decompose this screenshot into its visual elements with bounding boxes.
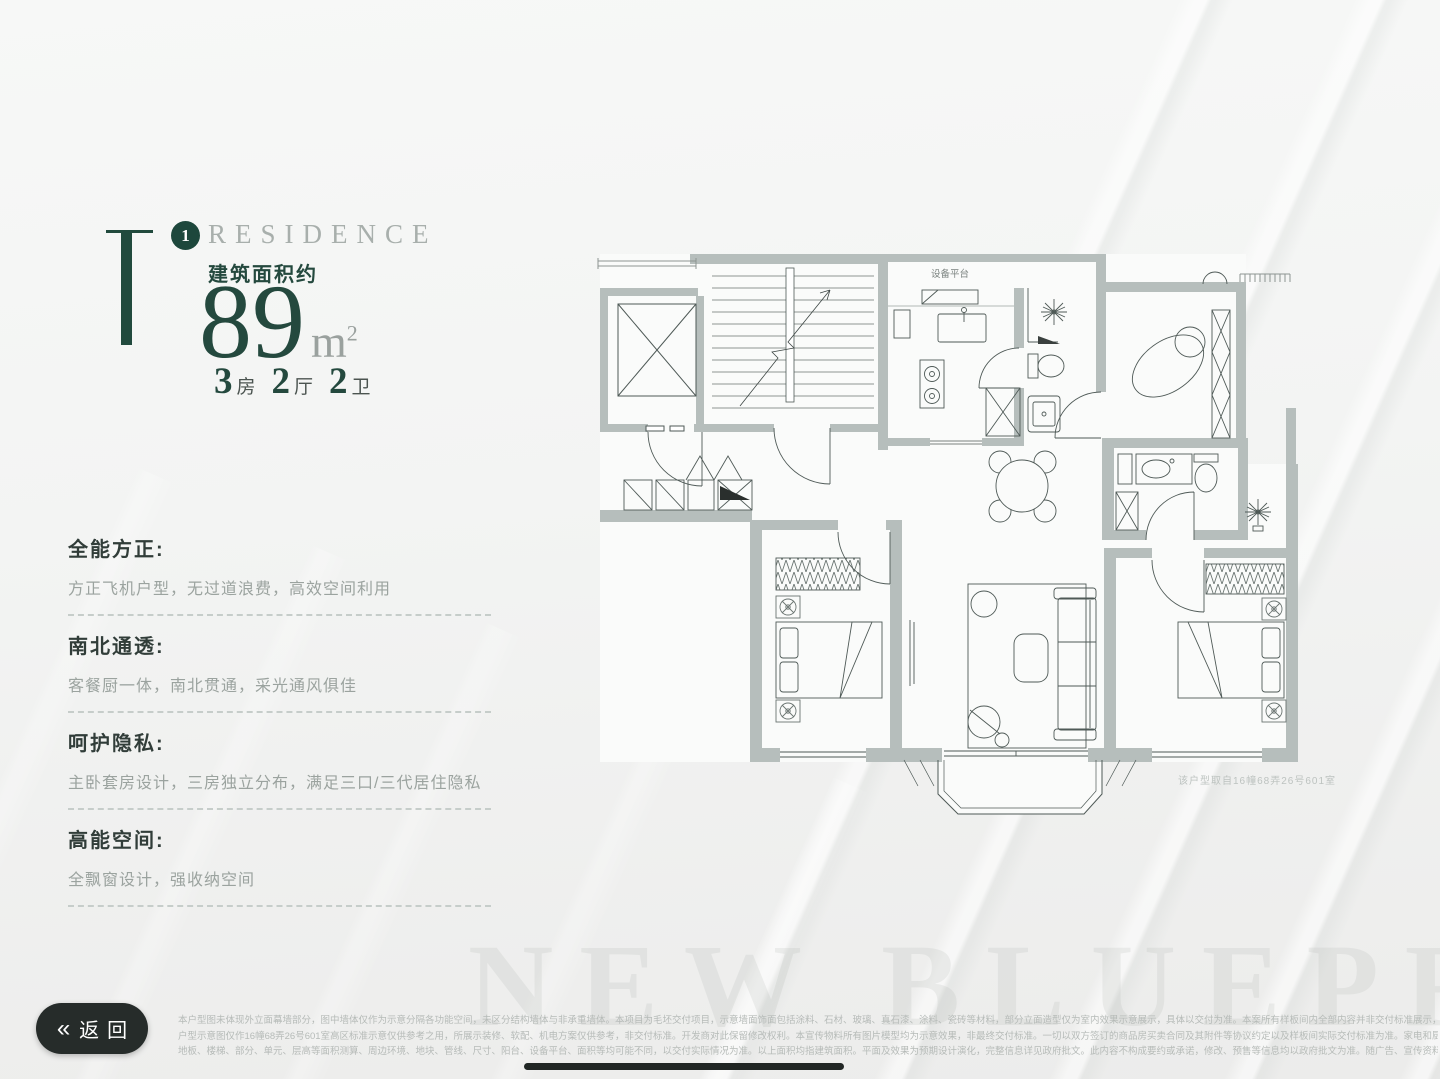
feature-item: 高能空间: 全飘窗设计，强收纳空间	[68, 824, 491, 907]
home-indicator[interactable]	[524, 1063, 844, 1070]
apartment-floor	[600, 254, 1298, 762]
balcony-floor	[938, 762, 1102, 814]
feature-desc: 主卧套房设计，三房独立分布，满足三口/三代居住隐私	[68, 769, 491, 793]
dashed-divider	[68, 905, 491, 907]
page-background: NEW BLUEPRINT 1 RESIDENCE 建筑面积约 89 m2 3 …	[0, 0, 1440, 1079]
chevron-left-icon: «	[57, 1017, 70, 1041]
room-count-living: 2 厅	[272, 360, 314, 403]
feature-list: 全能方正: 方正飞机户型，无过道浪费，高效空间利用 南北通透: 客餐厨一体，南北…	[68, 533, 491, 921]
platform-label: 设备平台	[931, 268, 969, 280]
feature-item: 全能方正: 方正飞机户型，无过道浪费，高效空间利用	[68, 533, 491, 616]
feature-desc: 全飘窗设计，强收纳空间	[68, 866, 491, 890]
feature-title: 全能方正:	[68, 533, 491, 562]
dining-table	[996, 460, 1048, 512]
feature-desc: 方正飞机户型，无过道浪费，高效空间利用	[68, 575, 491, 599]
unit-number-badge: 1	[171, 221, 200, 250]
dashed-divider	[68, 711, 491, 713]
disclaimer-line-2: 户型示意图仅作16幢68弄26号601室高区标准示意仅供参考之用，所展示装修、软…	[178, 1029, 1438, 1045]
disclaimer: 本户型图未体现外立面幕墙部分，图中墙体仅作为示意分隔各功能空间，未区分结构墙体与…	[178, 1013, 1438, 1060]
feature-item: 南北通透: 客餐厨一体，南北贯通，采光通风俱佳	[68, 630, 491, 713]
dashed-divider	[68, 808, 491, 810]
plan-caption: 该户型取自16幢68弄26号601室	[1178, 772, 1336, 787]
disclaimer-line-1: 本户型图未体现外立面幕墙部分，图中墙体仅作为示意分隔各功能空间，未区分结构墙体与…	[178, 1013, 1438, 1029]
feature-item: 呵护隐私: 主卧套房设计，三房独立分布，满足三口/三代居住隐私	[68, 727, 491, 810]
floor-plan-drawing: 设备平台	[590, 248, 1335, 823]
room-count-baths: 2 卫	[329, 360, 371, 403]
room-count-bedrooms: 3 房	[214, 360, 256, 403]
wardrobe-right	[1206, 564, 1284, 594]
room-config: 3 房 2 厅 2 卫	[214, 360, 371, 403]
disclaimer-line-3: 地板、楼梯、部分、单元、层高等面积测算、周边环境、地块、管线、尺寸、阳台、设备平…	[178, 1044, 1438, 1060]
feature-desc: 客餐厨一体，南北贯通，采光通风俱佳	[68, 672, 491, 696]
floor-plan: 设备平台	[590, 248, 1335, 823]
feature-title: 南北通透:	[68, 630, 491, 659]
back-button[interactable]: « 返回	[36, 1003, 148, 1054]
unit-logo-stem	[121, 232, 132, 345]
feature-title: 高能空间:	[68, 824, 491, 853]
wardrobe-left	[776, 558, 860, 590]
back-button-label: 返回	[79, 1014, 135, 1043]
residence-label: RESIDENCE	[208, 219, 438, 250]
dashed-divider	[68, 614, 491, 616]
feature-title: 呵护隐私:	[68, 727, 491, 756]
